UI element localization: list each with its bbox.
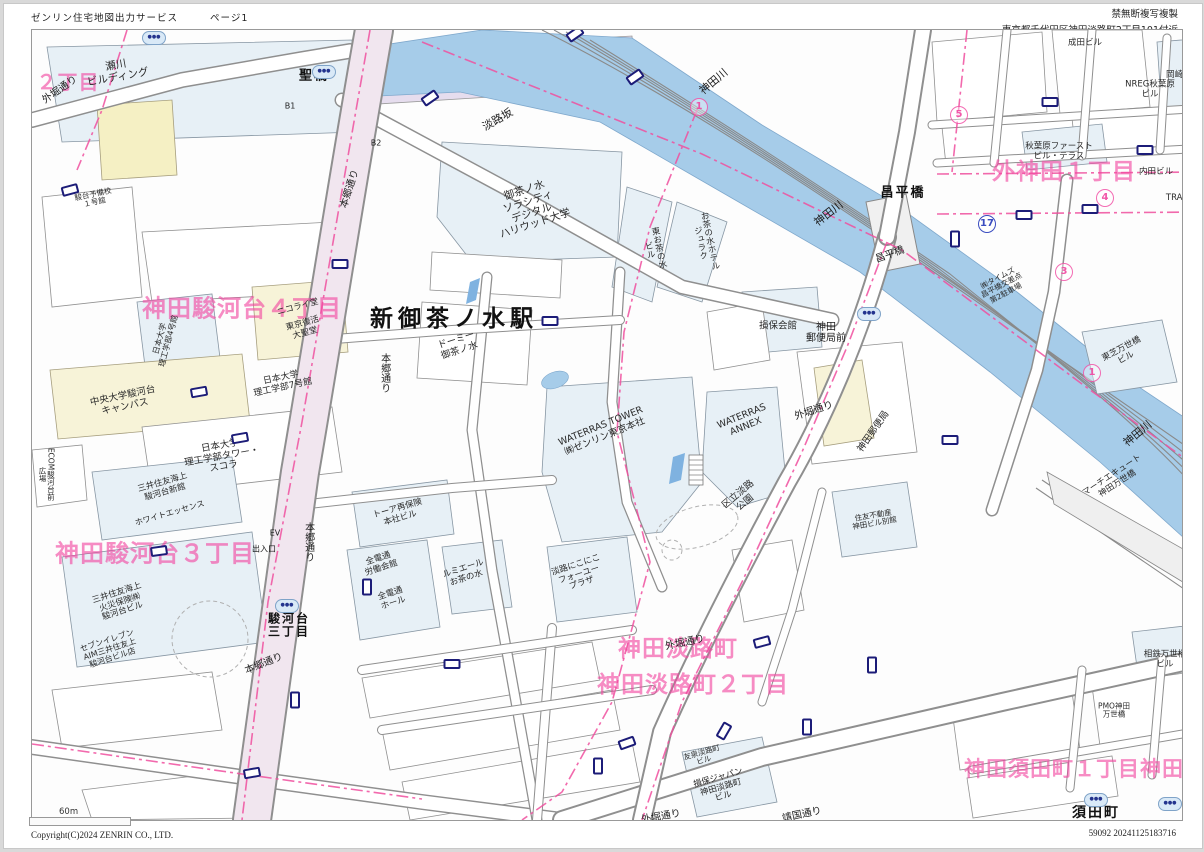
map-label: 本郷通り (243, 651, 284, 676)
map-label: ㈱タイムズ 昌平橋交差点 第2駐車場 (976, 264, 1028, 307)
map-label: 外堀通り (40, 74, 79, 106)
map-label: お茶の水ホテル ジュラク (689, 211, 720, 273)
map-label: ニコライ堂 (276, 298, 320, 318)
map-label: 神田須田町１丁目神田須 (964, 758, 1183, 782)
map-canvas: ２丁目神田駿河台４丁目神田駿河台３丁目外神田１丁目神田淡路町神田淡路町２丁目神田… (31, 29, 1183, 821)
subway-entrance-icon: ●●● (1158, 797, 1182, 811)
map-label: 神田淡路町２丁目 (597, 673, 789, 699)
map-label: 本郷通り (378, 353, 389, 393)
map-label: 出入口 (252, 546, 276, 555)
subway-entrance-icon: ●●● (312, 65, 336, 79)
crosswalk-marker-icon (1042, 97, 1059, 107)
map-label: トーア再保険 本社ビル (372, 498, 426, 530)
map-label: 東芝万世橋 ビル (1101, 336, 1147, 373)
map-label: ホワイトエッセンス (134, 500, 206, 528)
map-label: マーチエキュート 神田万世橋 (1081, 453, 1148, 506)
crosswalk-marker-icon (752, 635, 771, 649)
map-label: 損保会館 (759, 322, 797, 333)
crosswalk-marker-icon (420, 89, 440, 107)
copy-protection-notice: 禁無断複写複製 (1002, 6, 1178, 20)
subway-entrance-icon: ●●● (1084, 793, 1108, 807)
map-label: 外堀通り (640, 808, 681, 821)
map-label: 三井住友海上 駿河台新館 (137, 472, 191, 504)
map-label: EV (270, 530, 281, 539)
circled-number-icon: 1 (1083, 364, 1101, 382)
map-label: 中央大学駿河台 キャンパス (89, 385, 158, 420)
crosswalk-marker-icon (565, 29, 585, 43)
map-label: 外堀通り (793, 399, 834, 422)
map-label: B1 (285, 103, 296, 112)
map-label-layer: ２丁目神田駿河台４丁目神田駿河台３丁目外神田１丁目神田淡路町神田淡路町２丁目神田… (32, 30, 1182, 820)
subway-entrance-icon: ●●● (275, 599, 299, 613)
map-label: ECOM駿河台前 広場 (38, 448, 55, 500)
map-label: 瀬川 ビルディング (84, 55, 149, 89)
map-label: 東お茶の水 ビル (639, 226, 666, 272)
map-label: 神田郵便局 (856, 409, 892, 454)
circled-number-icon: 3 (1055, 263, 1073, 281)
subway-entrance-icon: ●●● (142, 31, 166, 45)
map-label: 駿河台 三丁目 (268, 613, 310, 640)
scale-bar (29, 817, 131, 826)
map-label: 日本大学 理工学部4号館 (149, 312, 180, 368)
subway-entrance-icon: ●●● (857, 307, 881, 321)
map-label: ドーミー 御茶ノ水 (437, 330, 480, 362)
map-label: 日本大学 理工学部7号館 (251, 367, 314, 399)
station-label: 新御茶ノ水駅 (370, 307, 538, 333)
map-label: 友泉淡路町 ビル (683, 744, 724, 770)
map-label: 岡崎ビル (1166, 71, 1183, 81)
service-title: ゼンリン住宅地図出力サービス (31, 13, 178, 24)
zenrin-map-page: ゼンリン住宅地図出力サービス ページ1 禁無断複写複製 東京都千代田区神田淡路町… (3, 3, 1203, 849)
crosswalk-marker-icon (150, 545, 168, 557)
crosswalk-marker-icon (243, 767, 261, 780)
map-label: 秋葉原ファースト ビル・テラス (1025, 142, 1093, 161)
crosswalk-marker-icon (290, 692, 300, 709)
crosswalk-marker-icon (60, 183, 79, 197)
crosswalk-marker-icon (950, 231, 960, 248)
crosswalk-marker-icon (802, 719, 812, 736)
map-label: 昌平橋 (874, 245, 906, 266)
crosswalk-marker-icon (593, 758, 603, 775)
crosswalk-marker-icon (190, 386, 208, 399)
map-label: 本郷通り (338, 168, 361, 209)
map-label: 靖国通り (781, 805, 822, 821)
map-label: 昌平橋 (880, 187, 925, 202)
map-label: TRADERZ (1166, 194, 1183, 204)
map-label: 淡路にこにこ フォーユー プラザ (550, 554, 607, 597)
map-label: 須田町 (1072, 806, 1120, 821)
map-label: 住友不動産 神田ビル別館 (850, 508, 897, 532)
map-label: セブンイレブン AIM三井住友上 駿河台ビル店 (79, 629, 141, 672)
map-label: 全電通 ホール (377, 586, 407, 612)
crosswalk-marker-icon (1137, 145, 1154, 155)
map-label: 神田川 (697, 67, 730, 98)
map-label: 全電通 労働会館 (361, 550, 399, 579)
map-label: 外神田１丁目 (992, 160, 1136, 186)
crosswalk-marker-icon (942, 435, 959, 445)
crosswalk-marker-icon (715, 721, 732, 741)
map-label: 損保ジャパン 神田淡路町 ビル (693, 767, 750, 809)
crosswalk-marker-icon (1082, 204, 1099, 214)
map-label: 東京復活 大聖堂 (285, 315, 323, 342)
map-label: 成田ビル (1068, 39, 1102, 49)
map-label: NREG秋葉原 ビル (1125, 80, 1175, 99)
crosswalk-marker-icon (617, 735, 636, 750)
map-label: 淡路坂 (481, 106, 516, 133)
map-label: 神田川 (1121, 419, 1154, 450)
map-label: WATERRAS TOWER ㈱ゼンリン東京本社 (557, 405, 648, 458)
map-label: B2 (371, 140, 382, 149)
scale-label: 60m (59, 807, 78, 817)
header-left: ゼンリン住宅地図出力サービス ページ1 (31, 10, 248, 24)
crosswalk-marker-icon (362, 579, 372, 596)
crosswalk-marker-icon (332, 259, 349, 269)
map-label: 区立淡路 公園 (721, 479, 764, 520)
map-label: 日本大学 理工学部タワー・ スコラ (182, 435, 262, 480)
circled-number-icon: 4 (1096, 189, 1114, 207)
circled-number-icon: 17 (978, 215, 996, 233)
map-label: 神田川 (812, 199, 846, 229)
map-label: 神田淡路町 (618, 637, 738, 663)
map-label: 相鉄万世橋 ビル (1144, 650, 1183, 669)
map-label: 本郷通り (302, 522, 313, 562)
copyright-text: Copyright(C)2024 ZENRIN CO., LTD. (31, 830, 173, 840)
map-label: ２丁目 (37, 71, 100, 93)
crosswalk-marker-icon (867, 657, 877, 674)
map-label: 神田駿河台４丁目 (142, 296, 342, 323)
map-label: 御茶ノ水 ソラシティ デジタル ハリウッド大学 (488, 174, 572, 241)
crosswalk-marker-icon (542, 316, 559, 326)
crosswalk-marker-icon (625, 68, 645, 86)
crosswalk-marker-icon (1016, 210, 1033, 220)
crosswalk-marker-icon (231, 432, 249, 445)
circled-number-icon: 1 (690, 98, 708, 116)
map-label: 内田ビル (1139, 168, 1173, 178)
map-label: 神田 郵便局前 (806, 322, 846, 344)
map-label: 駿台予備校 １号館 (74, 187, 114, 211)
crosswalk-marker-icon (444, 659, 461, 669)
map-label: PMO神田 万世橋 (1098, 703, 1130, 720)
circled-number-icon: 5 (950, 106, 968, 124)
page-number-label: ページ1 (210, 13, 248, 24)
map-label: WATERRAS ANNEX (716, 402, 772, 441)
map-label: ルミエール お茶の水 (442, 558, 488, 589)
print-code: 59092 20241125183716 (1089, 828, 1176, 838)
map-label: 三井住友海上 火災保険㈱ 駿河台ビル (91, 582, 148, 625)
map-label: 外堀通り (664, 633, 705, 652)
